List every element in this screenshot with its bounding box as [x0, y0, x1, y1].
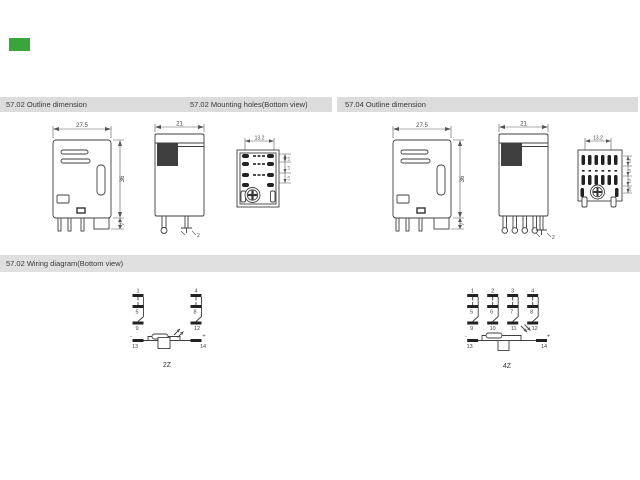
- pin-number: 13: [467, 344, 473, 350]
- relay-body-drawing: [499, 134, 548, 235]
- dim-hole-side: 4.8: [287, 157, 291, 162]
- hole-pattern-drawing: [578, 150, 622, 207]
- dim-pin-thickness: 2: [552, 235, 555, 241]
- relay-body-drawing: [155, 134, 204, 234]
- section-header-wiring: 57.02 Wiring diagram(Bottom view): [0, 255, 640, 272]
- pin-number: 9: [135, 326, 138, 332]
- polarity-mark: -: [130, 334, 132, 340]
- screw-icon: [591, 185, 605, 199]
- section-header-5704-outline: 57.04 Outline dimension: [337, 97, 638, 112]
- dim-pin-length: 7: [460, 222, 466, 225]
- pin-number: 14: [200, 344, 206, 350]
- dim-pin-thickness: 2: [197, 233, 200, 239]
- section-title: 57.02 Outline dimension: [6, 100, 87, 109]
- contact-symbols: [467, 294, 538, 325]
- front-view-5704: 27.5 36 7: [365, 118, 480, 248]
- contact-symbols: [133, 294, 202, 325]
- side-view-5702: 21 2: [145, 118, 223, 248]
- side-view-5704: 21 2: [489, 118, 567, 248]
- pin-number: 5: [135, 310, 138, 316]
- dim-side-width: 21: [520, 122, 527, 128]
- dim-front-height: 36: [460, 175, 466, 182]
- pin-number: 8: [193, 310, 196, 316]
- dim-hole-side: 4.8: [628, 159, 632, 164]
- pin-number: 5: [470, 310, 473, 316]
- coil-symbol: [498, 341, 509, 351]
- pin-number: 12: [194, 326, 200, 332]
- section-title: 57.04 Outline dimension: [345, 100, 426, 109]
- pin-number: 1: [136, 289, 139, 295]
- dim-hole-side: 4.8: [628, 169, 632, 174]
- dim-hole-side: 4.8: [628, 187, 632, 192]
- diagram-label-2z: 2Z: [163, 362, 172, 369]
- wiring-diagram-4z: 1 2 3 4 5 6 7 8 9 10 11 12 13 14 - + 4Z: [455, 283, 565, 378]
- dim-front-width: 27.5: [416, 123, 428, 129]
- dim-hole-side: 4.8: [628, 179, 632, 184]
- dim-hole-pitch: 13.2: [593, 136, 603, 142]
- pin-number: 11: [511, 326, 517, 332]
- section-title: 57.02 Mounting holes(Bottom view): [190, 100, 308, 109]
- dim-front-width: 27.5: [76, 123, 88, 129]
- dim-side-width: 21: [176, 122, 183, 128]
- dim-front-height: 36: [120, 175, 126, 182]
- pin-number: 4: [531, 289, 534, 295]
- pin-number: 8: [530, 310, 533, 316]
- pin-number: 10: [490, 326, 496, 332]
- pin-number: 9: [470, 326, 473, 332]
- pin-number: 14: [541, 344, 547, 350]
- relay-body-drawing: [53, 140, 111, 231]
- pin-number: 2: [491, 289, 494, 295]
- dim-pin-length: 7: [120, 222, 126, 225]
- polarity-mark: +: [547, 334, 550, 340]
- relay-body-drawing: [393, 140, 451, 231]
- dim-hole-pitch: 13.2: [255, 136, 265, 142]
- led-arrows-icon: [521, 325, 531, 333]
- pin-number: 3: [511, 289, 514, 295]
- hole-pattern-drawing: [237, 150, 279, 207]
- pin-number: 7: [510, 310, 513, 316]
- datasheet-page: 57.02 Outline dimension 57.02 Mounting h…: [0, 0, 640, 480]
- mounting-holes-5704: 13.2 4.8 4.8 4.8 4.8: [565, 125, 640, 225]
- section-title: 57.02 Wiring diagram(Bottom view): [6, 259, 123, 268]
- mounting-holes-5702: 13.2 4.8 4.8 4.8: [230, 125, 335, 225]
- dim-hole-side: 4.8: [287, 176, 291, 181]
- coil-symbol: [158, 338, 170, 349]
- dim-hole-side: 4.8: [287, 166, 291, 171]
- pin-number: 6: [490, 310, 493, 316]
- section-header-5702-outline: 57.02 Outline dimension 57.02 Mounting h…: [0, 97, 332, 112]
- pin-number: 4: [194, 289, 197, 295]
- polarity-mark: -: [465, 334, 467, 340]
- green-accent-chip: [9, 38, 30, 51]
- resistor-symbol: [486, 333, 502, 338]
- diagram-label-4z: 4Z: [503, 363, 512, 370]
- wiring-diagram-2z: 1 4 5 8 9 12 13 14 - + 2Z: [118, 283, 228, 378]
- pin-number: 12: [532, 326, 538, 332]
- coil-circuit: [133, 329, 202, 349]
- pin-number: 1: [471, 289, 474, 295]
- front-view-5702: 27.5 36 7: [25, 118, 140, 248]
- screw-icon: [245, 188, 260, 203]
- polarity-mark: +: [202, 334, 205, 340]
- pin-number: 13: [132, 344, 138, 350]
